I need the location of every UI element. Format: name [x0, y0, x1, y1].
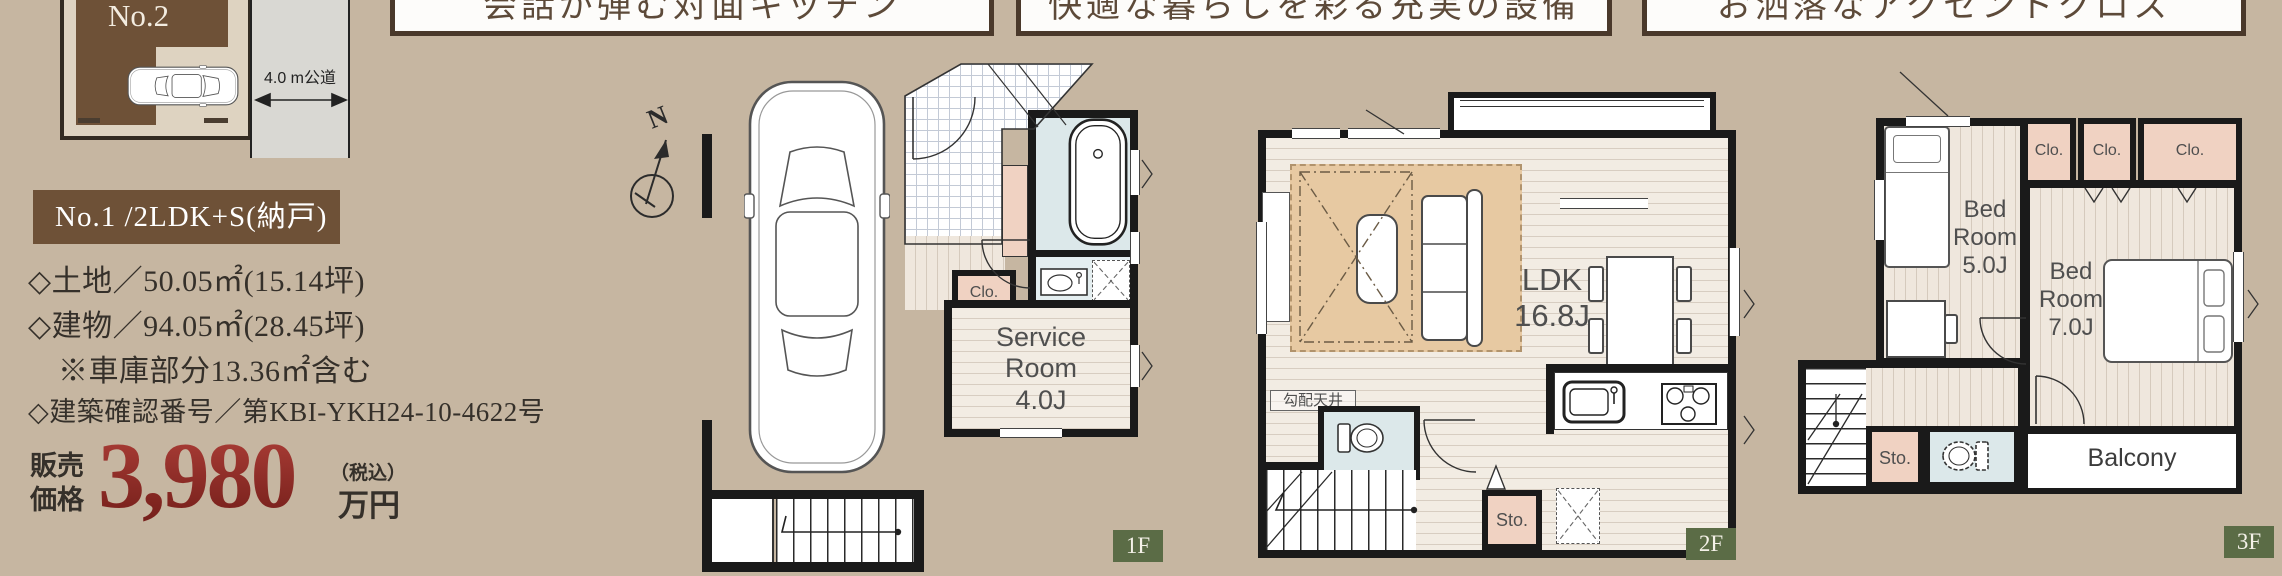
plan-linework	[0, 0, 2282, 576]
flyer-canvas: No.2 4.0 m公道 会話が弾む対面キッチン 快適な暮らしを彩る充実の設備 …	[0, 0, 2282, 576]
